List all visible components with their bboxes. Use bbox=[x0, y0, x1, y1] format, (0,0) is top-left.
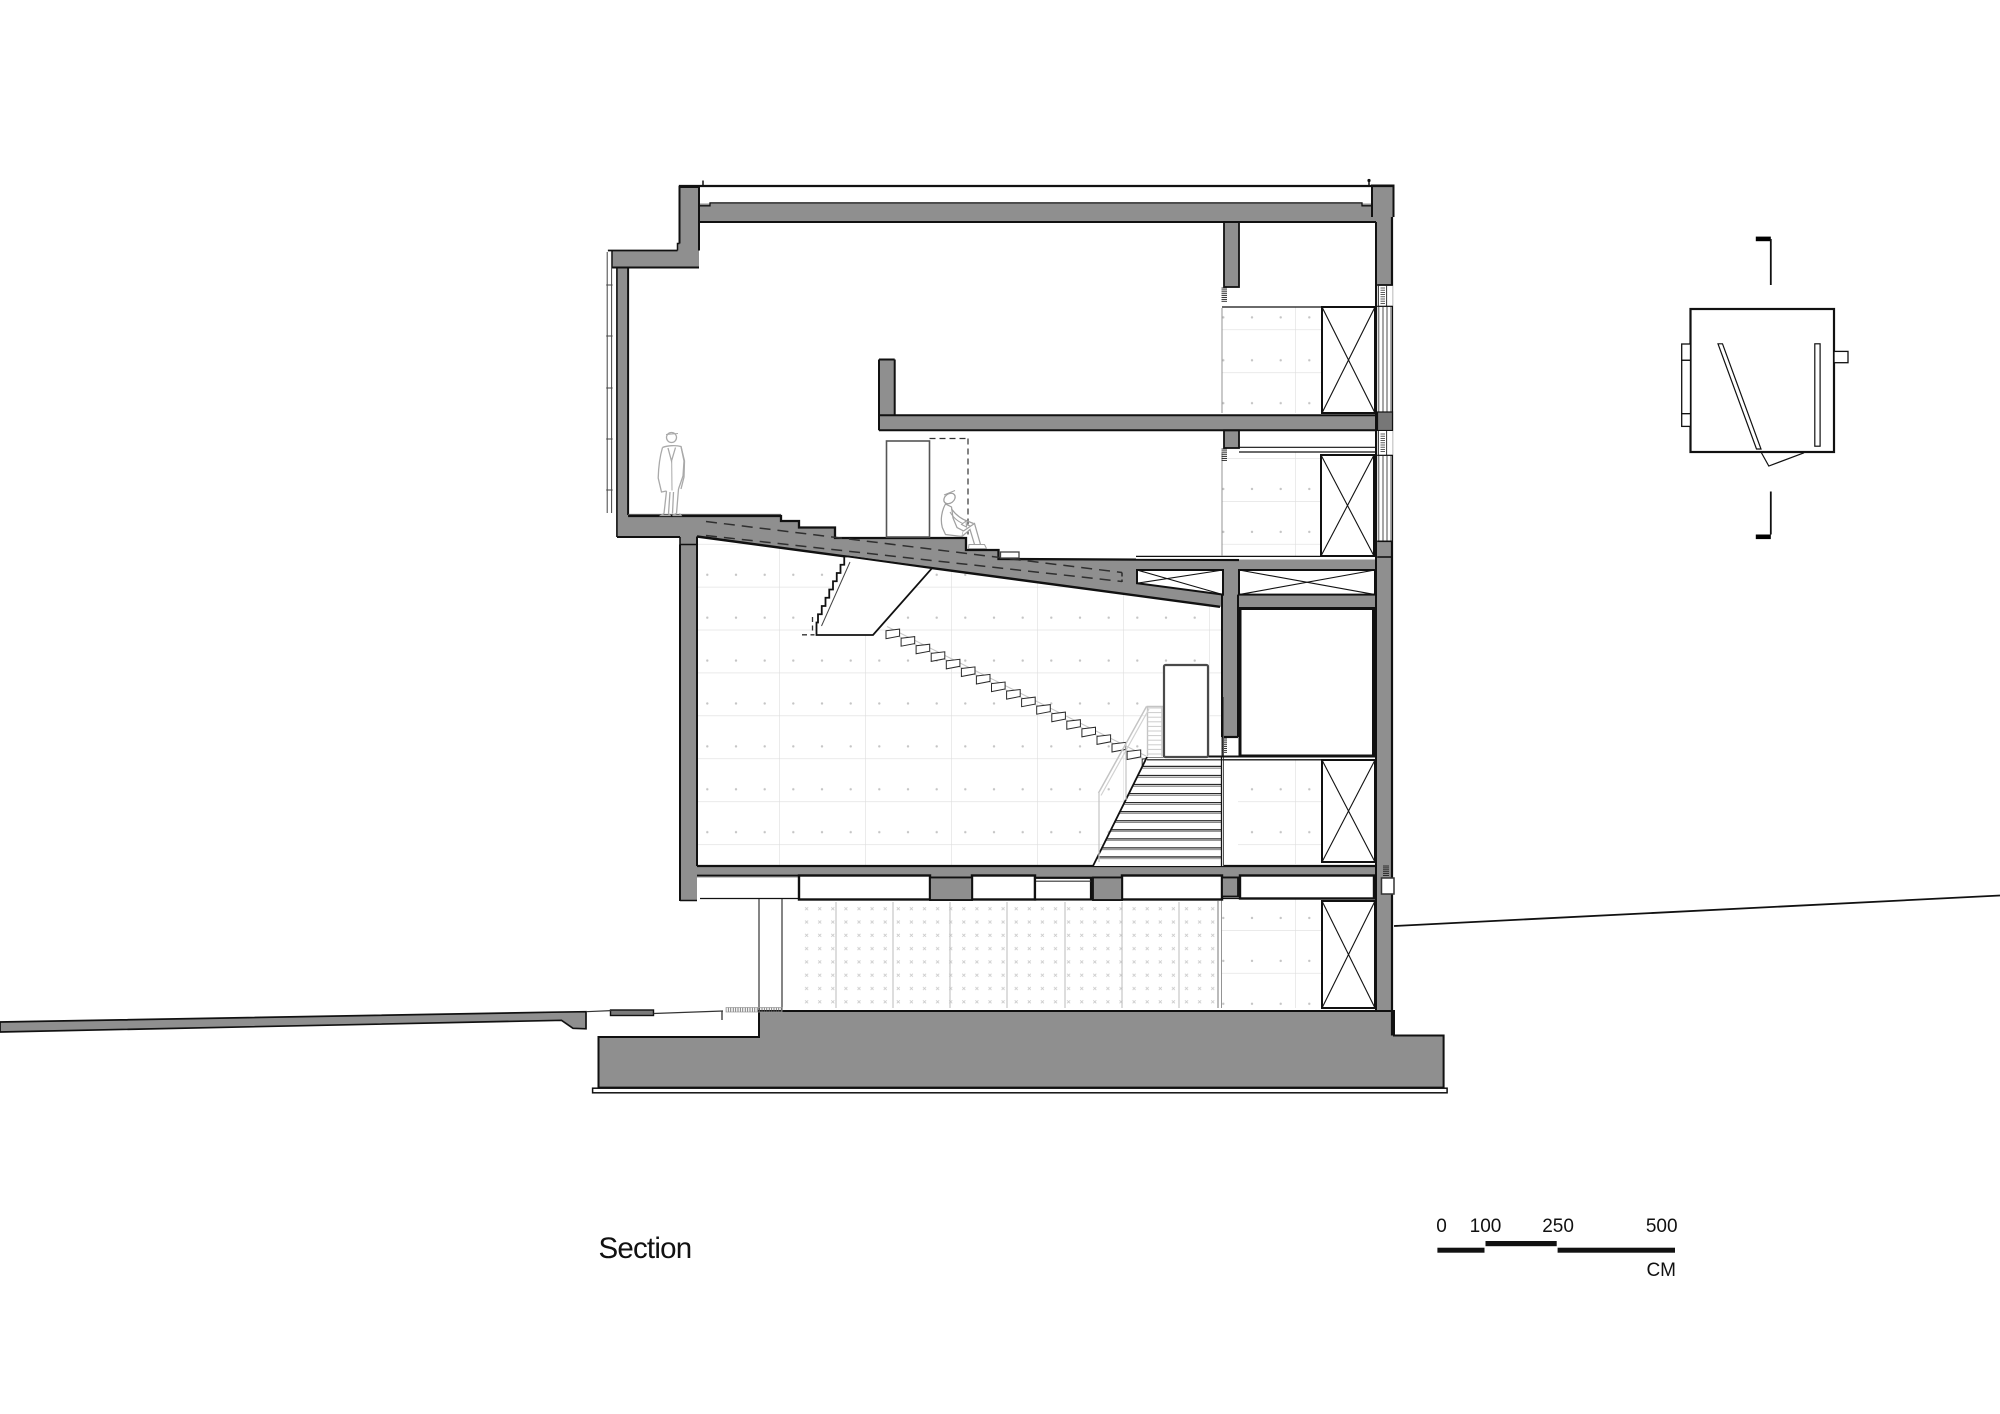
svg-text:500: 500 bbox=[1646, 1216, 1678, 1237]
svg-text:250: 250 bbox=[1542, 1216, 1574, 1237]
svg-text:100: 100 bbox=[1470, 1216, 1502, 1237]
svg-text:CM: CM bbox=[1646, 1260, 1676, 1281]
svg-text:Section: Section bbox=[599, 1232, 692, 1265]
svg-text:0: 0 bbox=[1436, 1216, 1447, 1237]
